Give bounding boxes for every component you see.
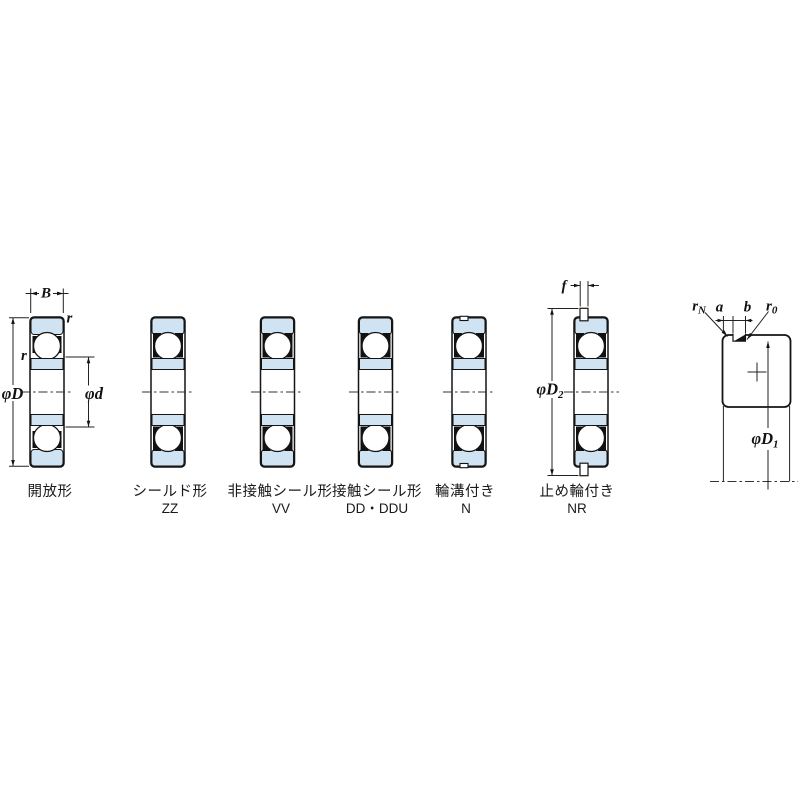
snap-ring-bottom bbox=[580, 463, 588, 476]
dim-label-phiD2: φD2 bbox=[536, 380, 564, 402]
snap-ring-top bbox=[580, 308, 588, 321]
dim-label-phiD: φD bbox=[2, 384, 24, 403]
dim-label-phiD1: φD1 bbox=[751, 429, 778, 451]
dim-phid: φd bbox=[66, 357, 104, 427]
groove-detail-drawing: a b rN r0 φD1 bbox=[692, 299, 790, 490]
bearing-code-dd: DD・DDU bbox=[346, 501, 408, 516]
bearing-label-shielded: シールド形 bbox=[133, 483, 208, 500]
dim-label-r0: r0 bbox=[766, 299, 778, 317]
dim-r0: r0 bbox=[747, 299, 778, 340]
diagram-canvas: B r r φD φd f φD bbox=[0, 0, 800, 800]
dim-B: B bbox=[26, 286, 69, 314]
dim-label-a: a bbox=[716, 300, 724, 316]
bearing-label-ring-groove: 輪溝付き bbox=[435, 483, 495, 500]
dim-label-r-side: r bbox=[21, 348, 27, 364]
snap-ring-groove-bottom bbox=[460, 464, 468, 468]
bearing-code-n: N bbox=[461, 501, 471, 516]
snap-ring-groove-top bbox=[460, 316, 468, 320]
bearing-type-labels: 開放形 シールド形 非接触シール形 接触シール形 輪溝付き 止め輪付き ZZ V… bbox=[28, 483, 615, 516]
dim-label-b: b bbox=[744, 300, 752, 316]
bearing-label-noncontact-seal: 非接触シール形 bbox=[228, 483, 333, 500]
bearing-label-contact-seal: 接触シール形 bbox=[332, 483, 422, 500]
dim-label-B: B bbox=[40, 286, 51, 302]
bearing-code-vv: VV bbox=[272, 501, 290, 516]
dim-f: f bbox=[562, 279, 600, 307]
bearing-label-snap-ring: 止め輪付き bbox=[540, 483, 615, 500]
dim-a-b: a b bbox=[716, 300, 753, 334]
dim-label-rN: rN bbox=[692, 299, 707, 317]
dim-label-f: f bbox=[562, 279, 569, 295]
dim-label-phid: φd bbox=[85, 384, 104, 403]
center-lines bbox=[21, 392, 798, 482]
bearing-code-nr: NR bbox=[567, 501, 587, 516]
bearing-types-diagram: B r r φD φd f φD bbox=[0, 0, 800, 800]
bearing-label-open: 開放形 bbox=[28, 483, 73, 500]
dim-label-r-top: r bbox=[67, 311, 73, 327]
bearing-code-zz: ZZ bbox=[162, 501, 179, 516]
